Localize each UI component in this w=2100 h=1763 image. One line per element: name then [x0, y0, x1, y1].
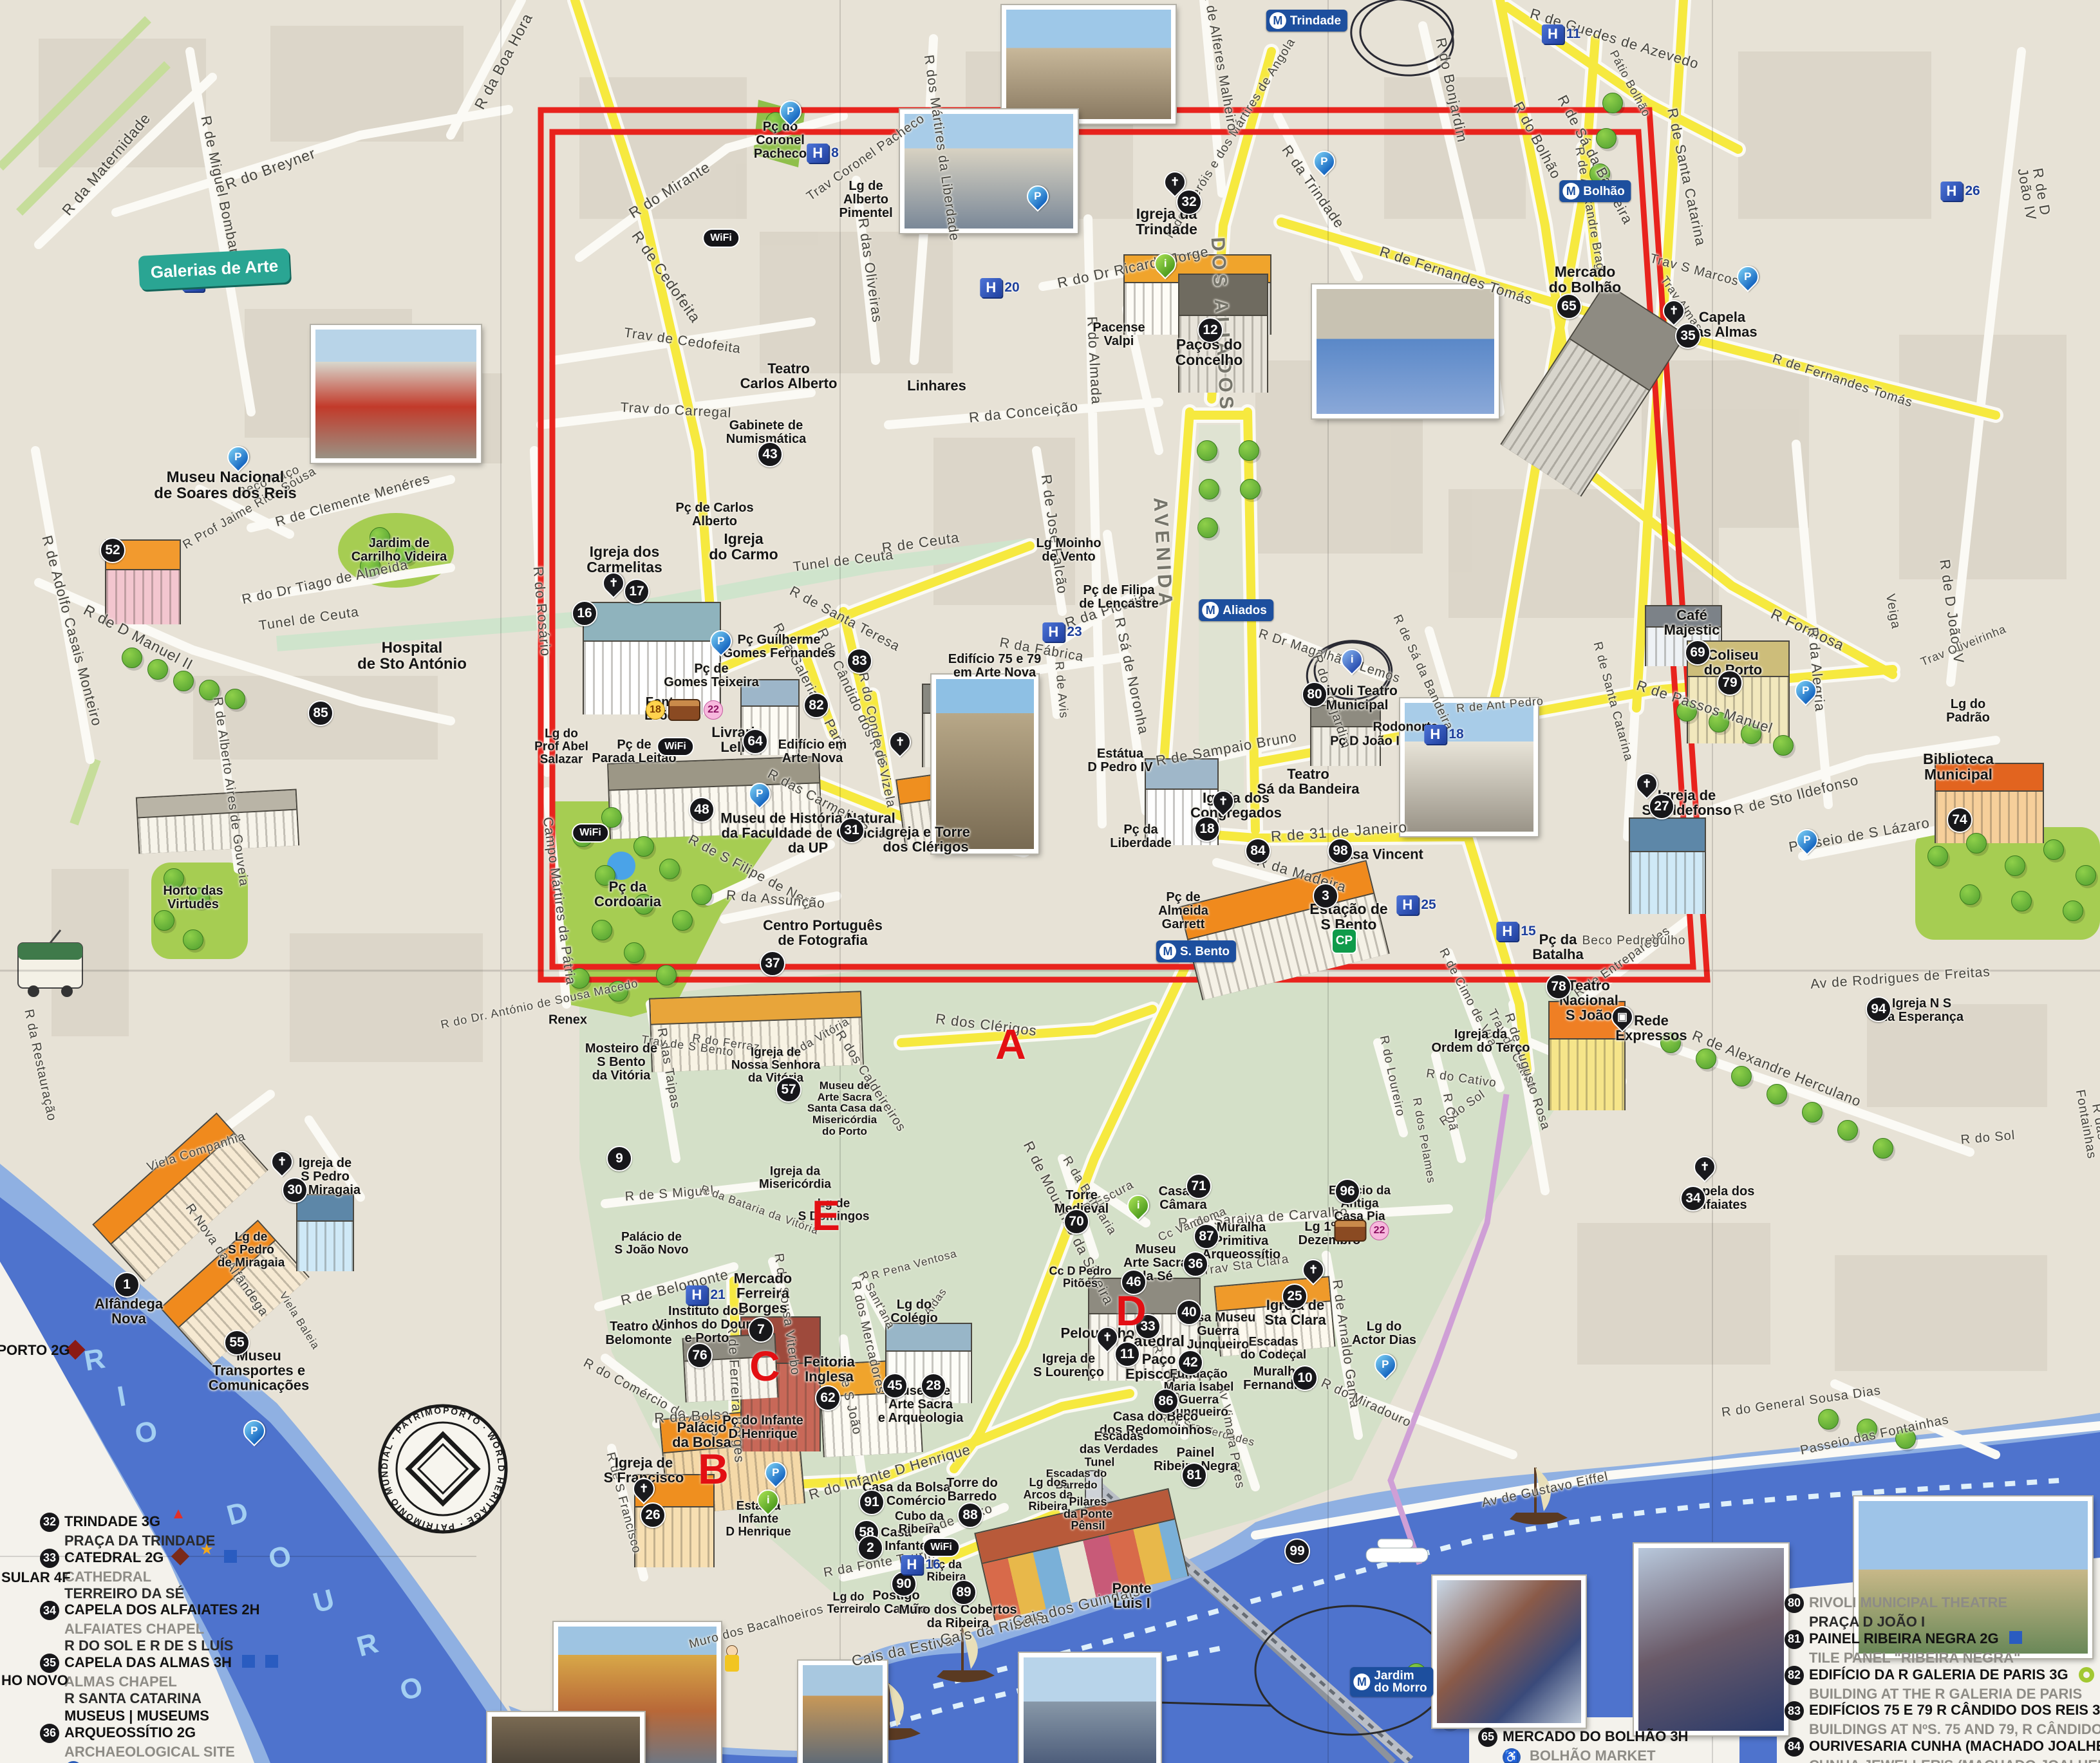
legend-badge-34: 34 [40, 1601, 59, 1620]
tree-icon [1895, 1428, 1916, 1449]
hotel-number: 21 [710, 1287, 725, 1303]
tree-icon [1927, 846, 1948, 866]
tree-icon [1199, 479, 1219, 499]
legend-text: PRAÇA DA TRINDADE [64, 1533, 215, 1549]
hotel-number: 26 [1965, 183, 1980, 199]
poi-marker-32[interactable]: 32 [1176, 189, 1202, 215]
tree-icon [1676, 701, 1697, 722]
tree-icon [1596, 128, 1617, 149]
poi-marker-3[interactable]: 3 [1313, 883, 1338, 909]
poi-marker-76[interactable]: 76 [687, 1343, 713, 1368]
hotel-icon: H [1496, 922, 1518, 941]
poi-marker-27[interactable]: 27 [1649, 794, 1674, 819]
legend-badge-36: 36 [40, 1724, 59, 1743]
church-icon[interactable]: ✝ [1302, 1259, 1324, 1281]
porto-2g-label: PORTO 2G [0, 1342, 70, 1359]
photo-igreja-trindade [1002, 5, 1176, 124]
legend-badge-65: 65 [1478, 1728, 1497, 1747]
poi-marker-91[interactable]: 91 [859, 1489, 885, 1515]
photo-aliados-fountain [1312, 285, 1499, 418]
hotel-badge-15[interactable]: H15 [1496, 922, 1535, 941]
poi-marker-1[interactable]: 1 [114, 1272, 140, 1298]
poi-marker-35[interactable]: 35 [1675, 323, 1701, 349]
poi-marker-9[interactable]: 9 [606, 1146, 632, 1171]
legend-row: ALMAS CHAPEL [40, 1674, 465, 1690]
poi-marker-28[interactable]: 28 [921, 1373, 946, 1399]
church-icon[interactable]: ✝ [1212, 790, 1234, 812]
hotel-icon: H [901, 1555, 923, 1574]
hotel-icon: H [686, 1285, 708, 1305]
legend-row: R SANTA CATARINA [40, 1691, 465, 1706]
hotel-badge-16[interactable]: H16 [901, 1555, 940, 1574]
legend-text: TRINDADE 3G [64, 1514, 160, 1529]
tree-icon [2011, 891, 2032, 911]
tree-icon [1197, 440, 1217, 461]
building-casa-guerra-junqueiro[interactable] [1214, 1276, 1336, 1356]
legend-text: ARCHAEOLOGICAL SITE [64, 1744, 235, 1760]
hotel-number: 8 [831, 145, 839, 161]
building-centro-fotografia[interactable] [649, 991, 864, 1072]
legend-text: PRAÇA D JOÃO I [1809, 1614, 1925, 1630]
poi-marker-88[interactable]: 88 [957, 1502, 983, 1528]
tree-icon [595, 865, 615, 886]
map-base-layer: PORTO · WORLD HERITAGE · PATRIMÓNIO MUND… [0, 0, 2100, 1763]
hotel-number: 25 [1421, 897, 1436, 913]
legend-row: 35CAPELA DAS ALMAS 3H [40, 1655, 465, 1673]
legend-text: CATEDRAL 2G [64, 1550, 164, 1565]
tree-icon [1966, 833, 1987, 854]
hotel-badge-23[interactable]: H23 [1042, 622, 1082, 642]
legend-left: 32TRINDADE 3G▲PRAÇA DA TRINDADE33CATEDRA… [40, 1514, 465, 1763]
hotel-number: 20 [1004, 280, 1019, 295]
poi-marker-26[interactable]: 26 [640, 1502, 666, 1528]
tree-icon [1873, 1138, 1893, 1159]
tree-icon [1239, 440, 1259, 461]
poi-marker-52[interactable]: 52 [100, 537, 126, 563]
metro-station-label: S. Bento [1180, 946, 1230, 958]
poi-marker-17[interactable]: 17 [624, 579, 650, 604]
tree-icon [189, 888, 210, 908]
parking-icon[interactable]: P [710, 630, 732, 652]
route-letter-c: C [749, 1341, 780, 1390]
legend-text: BUILDING AT THE R GALERIA DE PARIS [1809, 1686, 2082, 1702]
legend-text: R DO SOL E R DE S LUÍS [64, 1638, 233, 1654]
parking-icon[interactable]: P [749, 783, 771, 805]
poi-marker-71[interactable]: 71 [1186, 1173, 1212, 1199]
legend-text: ALFAIATES CHAPEL [64, 1621, 204, 1637]
photo-barcos-ponte [1019, 1653, 1161, 1763]
legend-symbol-bsq [242, 1655, 255, 1668]
legend-row: PRAÇA DA TRINDADE [40, 1533, 465, 1549]
legend-badge-80: 80 [1785, 1594, 1804, 1613]
metro-station-bolh-o[interactable]: MBolhão [1559, 180, 1631, 202]
metro-m-icon: M [1562, 183, 1579, 200]
church-icon[interactable]: ✝ [633, 1478, 655, 1500]
poi-marker-87[interactable]: 87 [1194, 1224, 1219, 1249]
tree-icon [2076, 865, 2096, 886]
metro-station-label: Bolhão [1583, 185, 1624, 198]
legend-row: BUILDING AT THE R GALERIA DE PARIS [1785, 1686, 2100, 1702]
parking-icon[interactable]: P [243, 1420, 265, 1442]
hotel-number: 16 [925, 1557, 940, 1572]
hotel-icon: H [980, 278, 1002, 297]
legend-symbol-bsq [224, 1550, 237, 1563]
hotel-icon: H [1424, 725, 1446, 744]
poi-marker-48[interactable]: 48 [689, 797, 715, 823]
poi-marker-43[interactable]: 43 [757, 442, 783, 467]
church-icon[interactable]: ✝ [1636, 773, 1658, 795]
poi-marker-74[interactable]: 74 [1947, 807, 1973, 833]
poi-marker-42[interactable]: 42 [1177, 1350, 1203, 1376]
church-icon[interactable]: ✝ [271, 1151, 293, 1173]
metro-station-jardim-do-morro[interactable]: MJardim do Morro [1350, 1667, 1433, 1697]
legend-symbol-bsq [265, 1655, 278, 1668]
bus-station-icon[interactable]: ▣ [1611, 1006, 1633, 1028]
legend-text: CATHEDRAL [64, 1569, 151, 1585]
metro-m-icon: M [1202, 602, 1219, 619]
poi-marker-37[interactable]: 37 [760, 951, 785, 976]
info-icon[interactable]: i [757, 1489, 779, 1511]
wheelchair-icon: ♿ [1503, 1748, 1521, 1763]
parking-icon[interactable]: P [1737, 266, 1759, 288]
legend-text: RIVOLI MUNICIPAL THEATRE [1809, 1595, 2007, 1610]
info-icon[interactable]: i [1154, 253, 1176, 275]
legend-row: TILE PANEL "RIBEIRA NEGRA" [1785, 1650, 2100, 1666]
tree-icon [164, 868, 184, 889]
poi-marker-90[interactable]: 90 [891, 1571, 917, 1597]
legend-row: 36ARQUEOSSÍTIO 2G [40, 1725, 465, 1743]
tree-icon [624, 942, 644, 963]
poi-marker-86[interactable]: 86 [1153, 1388, 1179, 1414]
poi-marker-16[interactable]: 16 [572, 601, 597, 626]
photo-painel-azulejo [1432, 1576, 1586, 1728]
building-biblioteca-municipal[interactable] [1935, 763, 2044, 843]
wifi-icon: WiFi [923, 1538, 960, 1557]
legend-row: 32TRINDADE 3G▲ [40, 1514, 465, 1532]
tree-icon [2005, 855, 2025, 876]
poi-marker-25[interactable]: 25 [1282, 1283, 1308, 1309]
poi-marker-89[interactable]: 89 [951, 1580, 977, 1605]
legend-badge-33: 33 [40, 1549, 59, 1568]
building-museu-historia-natural[interactable] [607, 756, 822, 839]
tree-icon [1960, 884, 1980, 905]
poi-marker-99[interactable]: 99 [1284, 1538, 1310, 1564]
hotel-icon: H [807, 144, 829, 163]
building-pacos-concelho[interactable] [1178, 274, 1268, 393]
legend-text: MUSEUS | MUSEUMS [64, 1708, 209, 1724]
poi-marker-40[interactable]: 40 [1176, 1300, 1202, 1325]
legend-text: PAINEL RIBEIRA NEGRA 2G [1809, 1631, 1999, 1646]
tree-icon [1767, 1084, 1787, 1105]
parking-icon[interactable]: P [1313, 151, 1335, 173]
legend-text: TERREIRO DA SÉ [64, 1586, 184, 1601]
tree-icon [360, 556, 380, 577]
tree-icon [1696, 1049, 1716, 1069]
tree-icon [672, 910, 693, 931]
hotel-number: 18 [1448, 727, 1463, 742]
hotel-icon: H [1542, 24, 1564, 44]
hotel-badge-20[interactable]: H20 [980, 278, 1019, 297]
tree-icon [691, 884, 712, 905]
poi-marker-78[interactable]: 78 [1546, 974, 1571, 1000]
tree-icon [370, 527, 390, 548]
poi-marker-55[interactable]: 55 [224, 1330, 250, 1356]
tree-icon [656, 965, 677, 985]
building-rivoli[interactable] [1310, 705, 1381, 766]
poi-marker-2[interactable]: 2 [858, 1535, 883, 1561]
hotel-icon: H [1396, 895, 1418, 915]
legend-text: ALMAS CHAPEL [64, 1674, 177, 1690]
legend-fragment: HO NOVO [1, 1672, 68, 1689]
poi-marker-94[interactable]: 94 [1866, 996, 1891, 1022]
tree-icon [1773, 735, 1794, 756]
photo-teatro-batalha [1400, 698, 1538, 836]
metro-station-aliados[interactable]: MAliados [1199, 599, 1273, 621]
metro-station-label: Jardim do Morro [1374, 1670, 1427, 1694]
building-igreja-sto-ildefonso[interactable] [1629, 817, 1706, 914]
legend-badge-82: 82 [1785, 1666, 1804, 1685]
photo-pacos-concelho [900, 109, 1078, 233]
metro-station-trindade[interactable]: MTrindade [1266, 10, 1347, 32]
poi-marker-10[interactable]: 10 [1292, 1365, 1318, 1391]
route-letter-a: A [995, 1020, 1026, 1068]
metro-m-icon: M [1353, 1674, 1370, 1690]
legend-row: PRAÇA D JOÃO I [1785, 1614, 2100, 1630]
hotel-badge-26[interactable]: H26 [1940, 182, 1980, 201]
poi-marker-79[interactable]: 79 [1717, 670, 1743, 696]
tree-icon [183, 929, 203, 950]
poi-marker-30[interactable]: 30 [282, 1177, 308, 1203]
tree-icon [2063, 900, 2083, 921]
tree-icon [1857, 1419, 1877, 1439]
legend-row: TERREIRO DA SÉ [40, 1586, 465, 1601]
tree-icon [154, 910, 174, 931]
tree-icon [225, 689, 245, 709]
legend-text: EDIFÍCIO DA R GALERIA DE PARIS 3G [1809, 1667, 2068, 1683]
legend-badge-35: 35 [40, 1654, 59, 1673]
metro-station-s-bento[interactable]: MS. Bento [1156, 940, 1236, 962]
tram-icon [1335, 1220, 1367, 1242]
photo-ribeira-2 [798, 1661, 887, 1763]
parking-icon[interactable]: P [1796, 829, 1818, 851]
poi-marker-96[interactable]: 96 [1335, 1179, 1360, 1204]
church-icon[interactable]: ✝ [1096, 1327, 1118, 1348]
legend-text: ARQUEOSSÍTIO 2G [64, 1725, 196, 1740]
tree-icon [1602, 93, 1623, 113]
church-icon[interactable]: ✝ [1164, 171, 1186, 193]
poi-marker-80[interactable]: 80 [1302, 682, 1327, 707]
poi-marker-69[interactable]: 69 [1685, 640, 1711, 666]
route-letter-b: B [698, 1444, 729, 1493]
tree-icon [1802, 1102, 1823, 1123]
walking-person-figure [726, 1645, 738, 1657]
porto-tourist-map: PORTO · WORLD HERITAGE · PATRIMÓNIO MUND… [0, 0, 2100, 1763]
poi-marker-81[interactable]: 81 [1181, 1462, 1207, 1488]
legend-row: 33CATEDRAL 2G★ [40, 1550, 465, 1568]
metro-station-label: Aliados [1223, 604, 1267, 617]
tree-icon [1197, 518, 1218, 538]
tree-icon [147, 659, 168, 680]
parking-icon[interactable]: P [780, 100, 802, 122]
hotel-number: 23 [1067, 624, 1082, 640]
hotel-badge-18[interactable]: H18 [1424, 725, 1463, 744]
poi-marker-70[interactable]: 70 [1064, 1209, 1089, 1235]
tree-icon [1709, 712, 1729, 732]
legend-row: 83EDIFÍCIOS 75 E 79 R CÂNDIDO DOS REIS 3… [1785, 1702, 2100, 1721]
tree-icon [1741, 723, 1761, 744]
photo-casas-escuras [487, 1712, 644, 1763]
tree-icon [1731, 1066, 1752, 1087]
poi-marker-98[interactable]: 98 [1327, 838, 1353, 864]
building-igreja-carmo-carmelitas[interactable] [583, 602, 721, 714]
poi-marker-11[interactable]: 11 [1114, 1341, 1140, 1367]
tree-icon [1240, 479, 1261, 499]
poi-marker-82[interactable]: 82 [803, 693, 829, 718]
parking-icon[interactable]: P [1795, 680, 1817, 702]
legend-row: 65MERCADO DO BOLHÃO 3H [1478, 1729, 1903, 1747]
tree-icon [173, 671, 194, 691]
building-hospital-sto-antonio[interactable] [136, 789, 299, 854]
metro-station-label: Trindade [1290, 15, 1341, 27]
hotel-icon: H [1940, 182, 1962, 201]
poi-marker-84[interactable]: 84 [1245, 838, 1271, 864]
tree-icon [1660, 1032, 1681, 1053]
photo-torre-clerigos [932, 675, 1038, 854]
tram-stop-2[interactable]: 22 [1335, 1220, 1389, 1242]
legend-row: R DO SOL E R DE S LUÍS [40, 1638, 465, 1654]
tree-icon [1837, 1120, 1858, 1141]
poi-marker-12[interactable]: 12 [1197, 317, 1223, 343]
tree-icon [592, 920, 612, 940]
info-icon[interactable]: i [1341, 649, 1363, 671]
legend-row: 34CAPELA DOS ALFAIATES 2H [40, 1602, 465, 1620]
metro-m-icon: M [1270, 12, 1286, 29]
legend-fragment: SULAR 4F [1, 1569, 71, 1586]
photo-praca-carlos-alberto [311, 325, 481, 463]
legend-badge-83: 83 [1785, 1701, 1804, 1721]
parking-icon[interactable]: P [765, 1462, 787, 1484]
wifi-icon: WiFi [657, 737, 694, 756]
hotel-badge-21[interactable]: H21 [686, 1285, 725, 1305]
church-icon[interactable]: ✝ [603, 572, 624, 594]
legend-text: R SANTA CATARINA [64, 1691, 202, 1706]
tram-icon [668, 699, 700, 721]
legend-text: CAPELA DOS ALFAIATES 2H [64, 1602, 260, 1618]
poi-marker-34[interactable]: 34 [1680, 1186, 1706, 1211]
tree-icon [2043, 839, 2064, 860]
legend-mini: 65MERCADO DO BOLHÃO 3H♿BOLHÃO MARKET [1478, 1729, 1903, 1763]
legend-row: ALFAIATES CHAPEL [40, 1621, 465, 1637]
wifi-icon: WiFi [572, 823, 609, 843]
parking-icon[interactable]: P [1374, 1354, 1396, 1376]
route-letter-e: E [812, 1191, 840, 1240]
legend-text: TILE PANEL "RIBEIRA NEGRA" [1809, 1650, 2020, 1666]
poi-marker-7[interactable]: 7 [748, 1317, 774, 1343]
parking-icon[interactable]: P [227, 446, 249, 468]
legend-symbol-dia [171, 1547, 189, 1565]
parking-icon[interactable]: P [1027, 185, 1049, 207]
hotel-badge-11[interactable]: H11 [1542, 24, 1580, 44]
church-icon[interactable]: ✝ [1694, 1156, 1716, 1178]
legend-text: EDIFÍCIOS 75 E 79 R CÂNDIDO DOS REIS 3G [1809, 1702, 2100, 1718]
building-igreja-miragaia[interactable] [296, 1194, 354, 1271]
tram-stop-1[interactable]: 1822 [646, 699, 723, 721]
info-icon[interactable]: i [1127, 1195, 1149, 1217]
legend-row: 80RIVOLI MUNICIPAL THEATRE [1785, 1595, 2100, 1613]
hotel-badge-8[interactable]: H8 [807, 144, 839, 163]
legend-symbol-bsq [2009, 1631, 2022, 1644]
poi-marker-62[interactable]: 62 [815, 1385, 841, 1411]
tree-icon [659, 859, 680, 879]
church-icon[interactable]: ✝ [889, 731, 911, 753]
church-icon[interactable]: ✝ [1663, 300, 1685, 322]
legend-text: BOLHÃO MARKET [1530, 1748, 1656, 1763]
poi-marker-57[interactable]: 57 [776, 1077, 802, 1103]
poi-marker-64[interactable]: 64 [742, 729, 768, 754]
hotel-icon: H [1042, 622, 1064, 642]
photo-painel-azulejo-2 [1634, 1544, 1788, 1735]
tree-icon [569, 968, 590, 989]
legend-text: CAPELA DAS ALMAS 3H [64, 1655, 232, 1670]
legend-row: 82EDIFÍCIO DA R GALERIA DE PARIS 3G [1785, 1667, 2100, 1685]
route-letter-d: D [1116, 1286, 1147, 1335]
tree-icon [122, 648, 142, 668]
legend-row: ♿BOLHÃO MARKET [1478, 1748, 1903, 1763]
poi-marker-83[interactable]: 83 [847, 648, 872, 674]
tree-icon [633, 836, 654, 857]
poi-marker-36[interactable]: 36 [1183, 1251, 1208, 1277]
hotel-number: 15 [1521, 924, 1535, 939]
wifi-icon: WiFi [702, 229, 740, 248]
tree-icon [1818, 1409, 1839, 1430]
cp-rail-logo: CP [1331, 928, 1357, 954]
tree-icon [633, 894, 654, 915]
legend-badge-81: 81 [1785, 1630, 1804, 1649]
poi-marker-65[interactable]: 65 [1556, 294, 1582, 319]
legend-row: 81PAINEL RIBEIRA NEGRA 2G [1785, 1631, 2100, 1649]
poi-marker-18[interactable]: 18 [1194, 816, 1220, 842]
tree-icon [199, 680, 220, 700]
tree-icon [608, 981, 628, 1002]
legend-row: MUSEUS | MUSEUMS [40, 1708, 465, 1724]
poi-marker-45[interactable]: 45 [882, 1373, 908, 1399]
hotel-number: 11 [1566, 26, 1580, 42]
poi-marker-31[interactable]: 31 [839, 817, 865, 843]
metro-m-icon: M [1159, 943, 1176, 960]
legend-row: CATHEDRAL [40, 1569, 465, 1585]
legend-badge-32: 32 [40, 1513, 59, 1532]
hotel-badge-25[interactable]: H25 [1396, 895, 1436, 915]
legend-symbol-ring [2079, 1667, 2094, 1683]
tree-icon [395, 543, 416, 564]
legend-row: ARCHAEOLOGICAL SITE [40, 1744, 465, 1760]
poi-marker-85[interactable]: 85 [308, 700, 333, 726]
legend-text: MERCADO DO BOLHÃO 3H [1503, 1729, 1688, 1744]
